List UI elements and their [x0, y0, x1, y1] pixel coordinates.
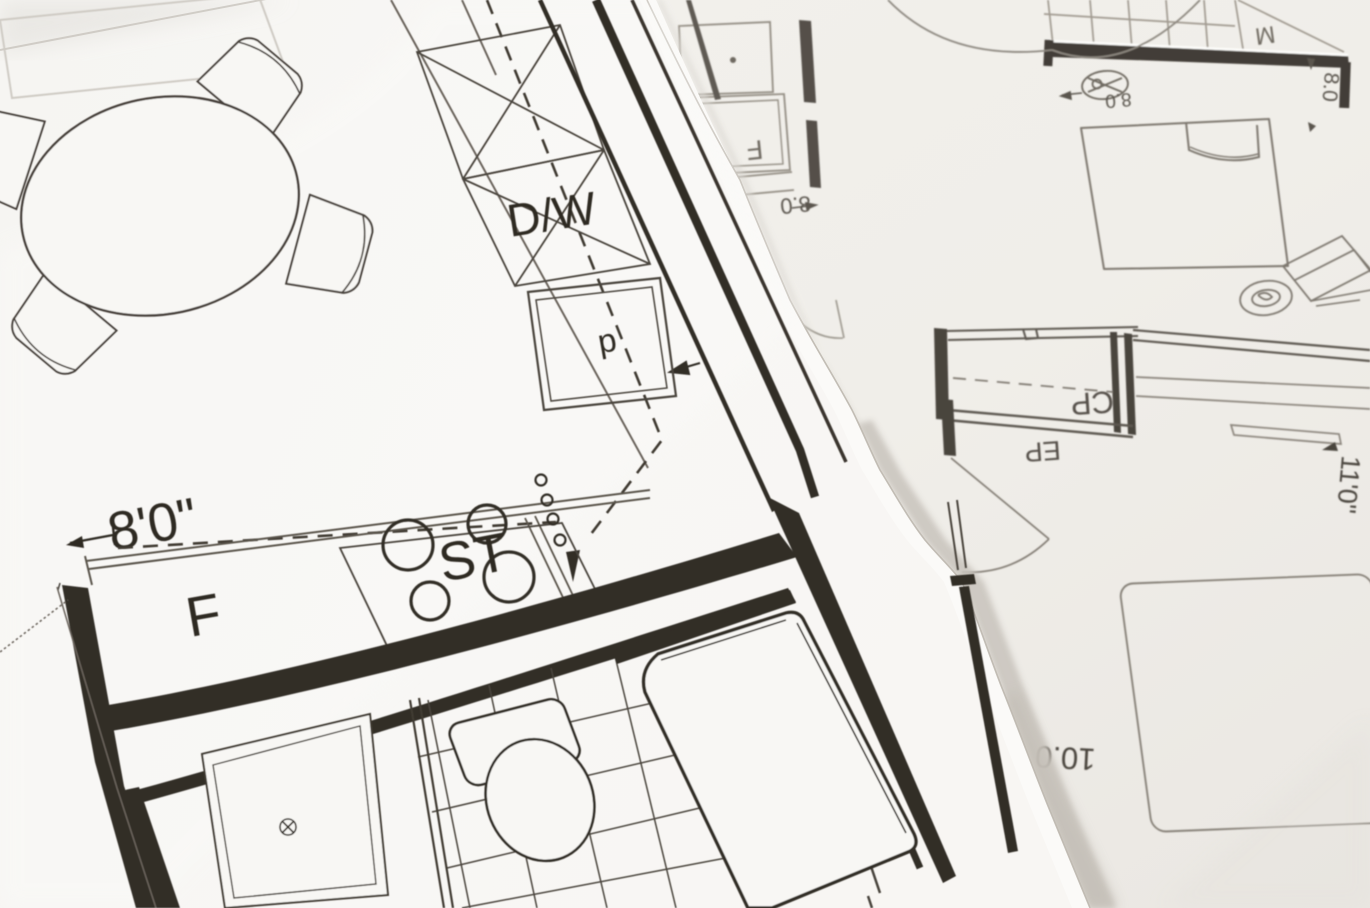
svg-text:CP: CP: [1070, 384, 1115, 422]
svg-text:EP: EP: [1024, 435, 1062, 467]
svg-text:11'0": 11'0": [1331, 454, 1366, 514]
svg-text:F: F: [745, 134, 765, 166]
svg-text:8.0: 8.0: [1104, 88, 1132, 111]
svg-text:8.0: 8.0: [1317, 72, 1342, 103]
svg-text:M: M: [1253, 20, 1277, 50]
